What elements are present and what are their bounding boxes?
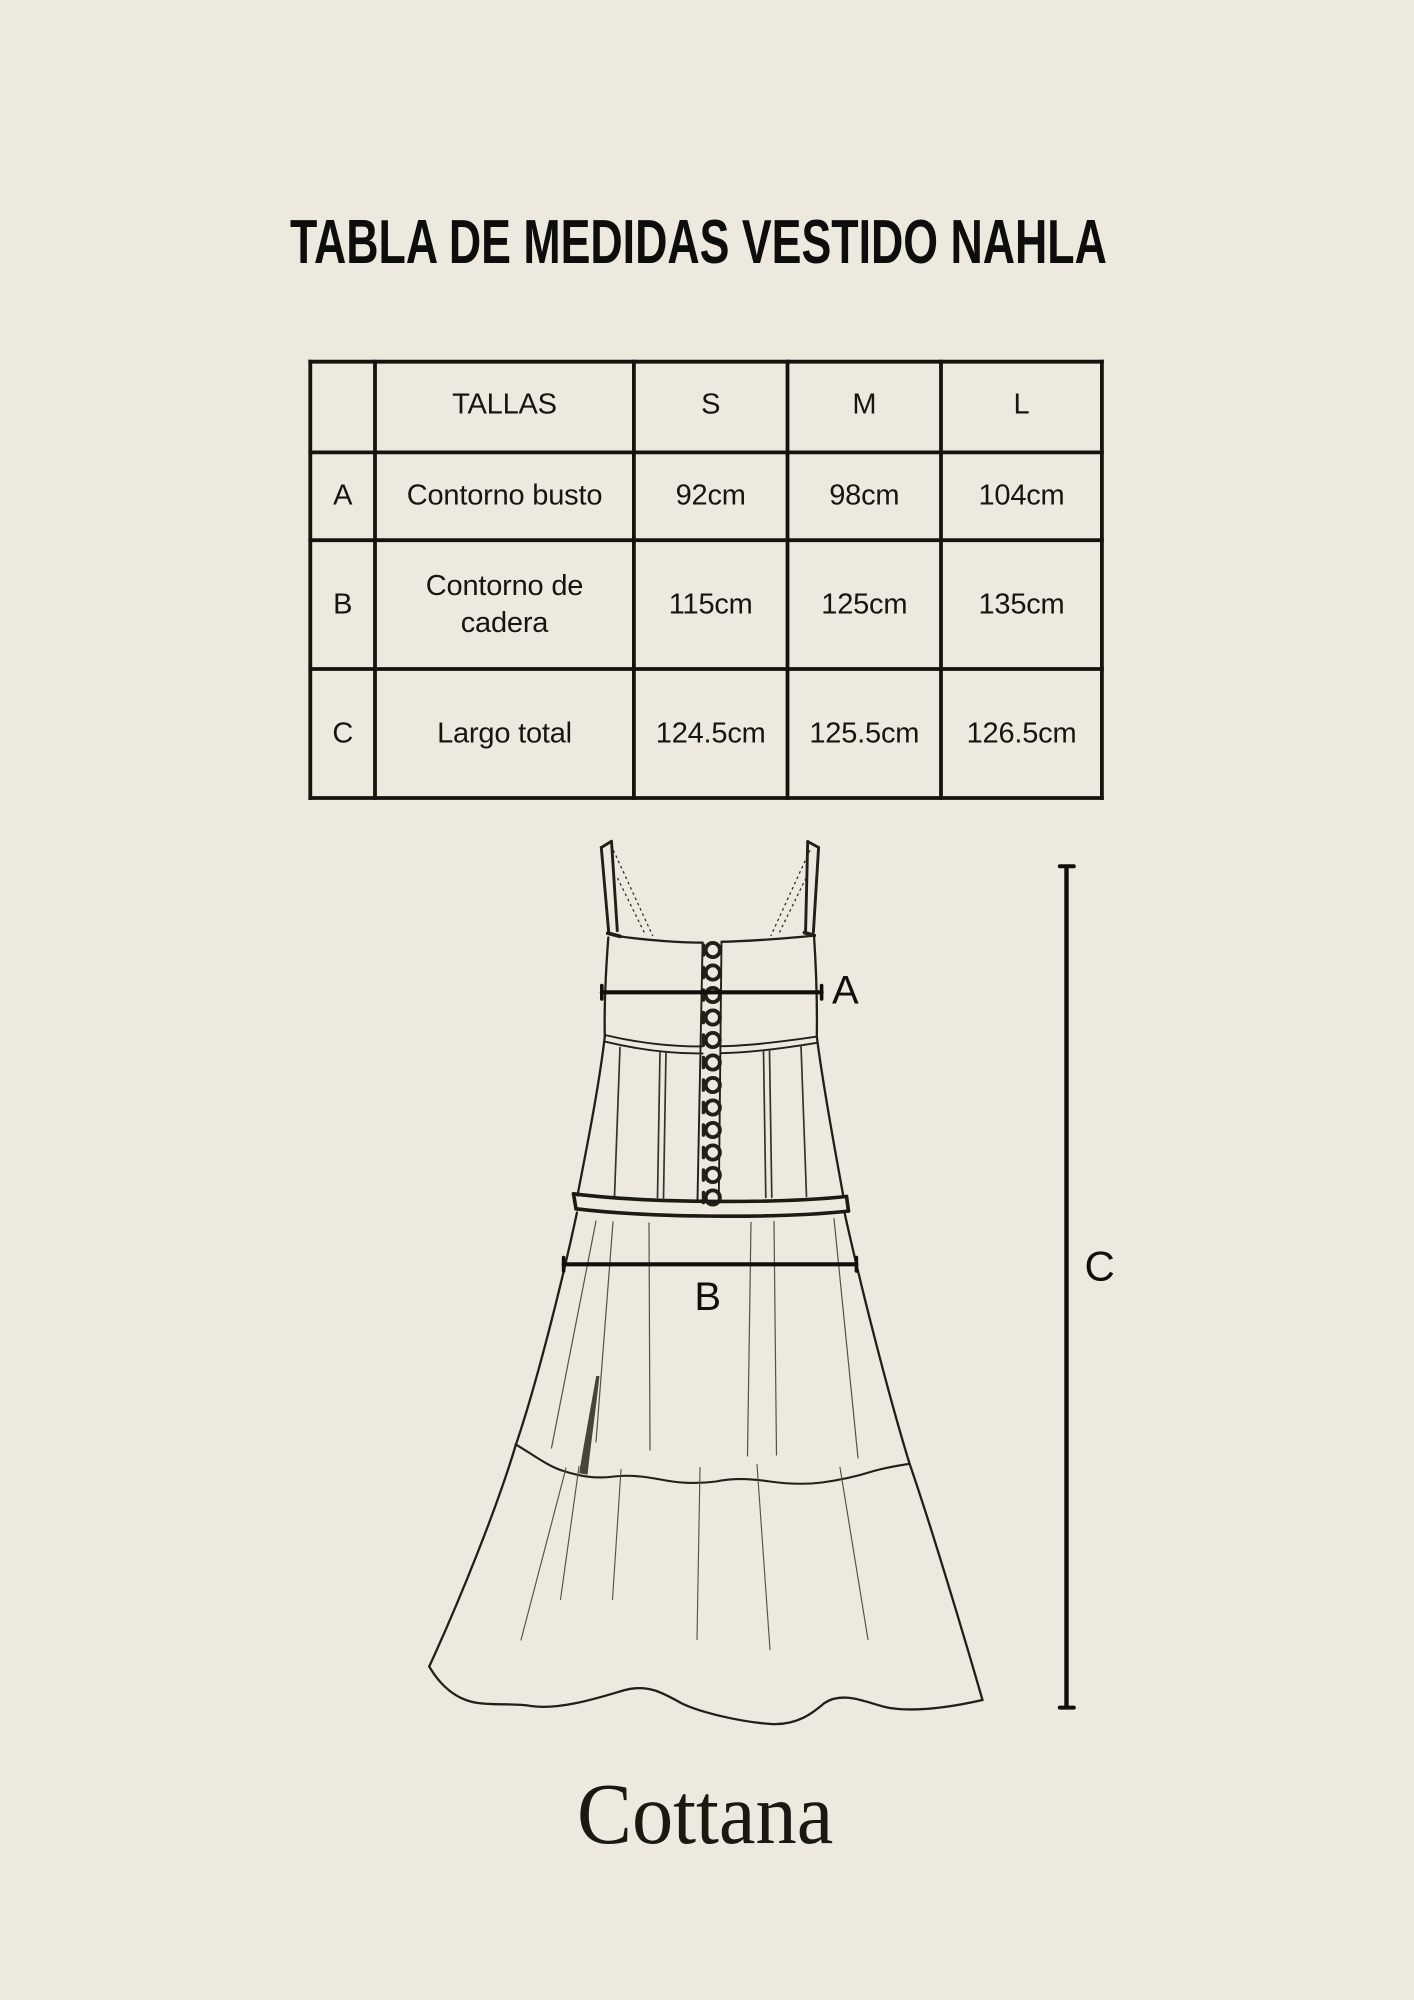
svg-text:A: A: [832, 968, 859, 1012]
svg-text:B: B: [694, 1275, 721, 1319]
svg-text:C: C: [1085, 1243, 1115, 1290]
